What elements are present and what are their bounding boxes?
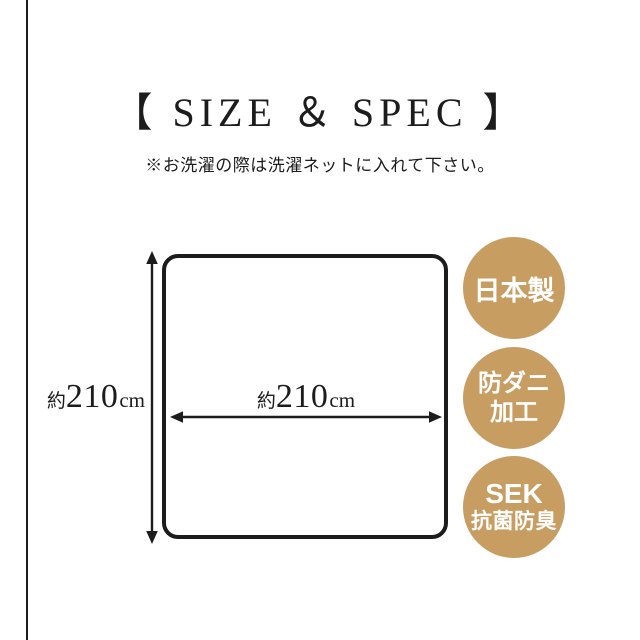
height-unit: cm <box>119 388 145 413</box>
badge-anti-mite-line2: 加工 <box>490 398 538 427</box>
height-dimension-label: 約210cm <box>38 378 145 416</box>
badge-sek-line1: SEK <box>485 479 543 508</box>
width-value: 210 <box>276 378 329 416</box>
badge-sek-line2: 抗菌防臭 <box>471 508 557 535</box>
badge-made-in-japan: 日本製 <box>463 237 565 339</box>
badge-made-in-japan-label: 日本製 <box>474 269 555 308</box>
badge-sek-antibacterial: SEK 抗菌防臭 <box>463 456 565 558</box>
size-spec-panel: 【 SIZE ＆ SPEC 】 ※お洗濯の際は洗濯ネットに入れて下さい。 約21… <box>0 0 640 640</box>
height-value: 210 <box>66 378 119 416</box>
width-approx-prefix: 約 <box>257 386 276 413</box>
washing-note: ※お洗濯の際は洗濯ネットに入れて下さい。 <box>0 151 640 176</box>
vertical-dimension-arrow <box>143 251 161 544</box>
width-unit: cm <box>329 388 355 413</box>
width-dimension-label: 約210cm <box>257 378 355 416</box>
badge-anti-mite: 防ダニ 加工 <box>463 347 565 449</box>
badge-anti-mite-line1: 防ダニ <box>478 369 550 398</box>
section-title: 【 SIZE ＆ SPEC 】 <box>0 80 640 138</box>
height-approx-prefix: 約 <box>47 386 66 413</box>
